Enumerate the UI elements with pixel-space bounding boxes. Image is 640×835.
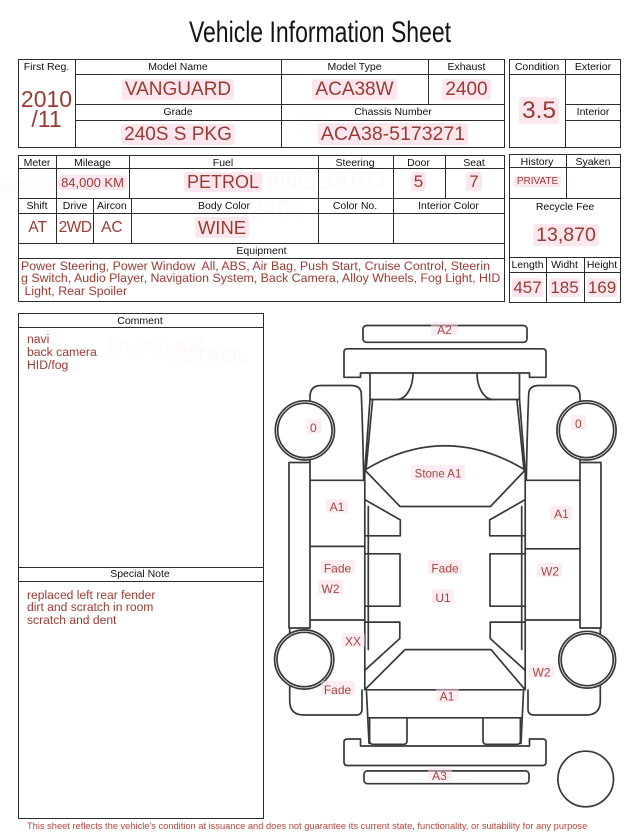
- svg-text:0: 0: [310, 421, 317, 435]
- svg-text:A3: A3: [432, 769, 447, 783]
- svg-text:XX: XX: [345, 635, 361, 649]
- svg-text:U1: U1: [435, 591, 451, 605]
- svg-text:W2: W2: [541, 565, 559, 579]
- svg-text:A1: A1: [440, 690, 455, 704]
- svg-text:Fade: Fade: [431, 562, 459, 576]
- svg-text:W2: W2: [533, 666, 551, 680]
- svg-text:W2: W2: [322, 582, 340, 596]
- svg-text:Fade: Fade: [324, 683, 352, 697]
- svg-text:A1: A1: [554, 507, 569, 521]
- svg-text:A2: A2: [437, 323, 452, 337]
- svg-text:0: 0: [575, 417, 582, 431]
- svg-text:A1: A1: [330, 500, 345, 514]
- svg-text:Stone A1: Stone A1: [415, 469, 462, 481]
- svg-text:Fade: Fade: [324, 562, 352, 576]
